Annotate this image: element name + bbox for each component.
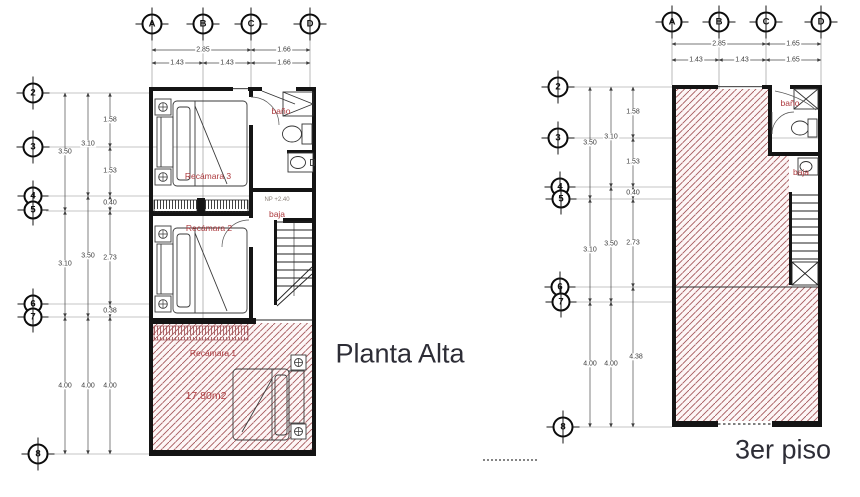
dim-label: 1.65 <box>785 56 801 63</box>
dim-label: 2.73 <box>102 254 118 261</box>
grid-bubble-3-right: 3 <box>547 127 570 150</box>
dim-label: 3.10 <box>582 246 598 253</box>
dim-label: 1.66 <box>276 46 292 53</box>
grid-bubble-2: 2 <box>22 82 45 105</box>
dotted-divider <box>483 459 537 461</box>
grid-bubble-8-right: 8 <box>552 416 575 439</box>
room-label-recamara-1: Recámara 1 <box>190 348 236 358</box>
dim-label: 1.43 <box>734 56 750 63</box>
dim-label: 1.65 <box>785 40 801 47</box>
grid-bubble-d: D <box>299 13 322 36</box>
bathroom-left-plan <box>222 92 315 247</box>
grid-bubble-c-right: C <box>755 11 778 34</box>
dim-label: 2.85 <box>711 40 727 47</box>
grid-bubble-8: 8 <box>27 443 50 466</box>
dim-label: 4.00 <box>102 382 118 389</box>
dim-label: 3.50 <box>80 252 96 259</box>
dim-label: 2.85 <box>195 46 211 53</box>
dim-label: 3.10 <box>57 260 73 267</box>
dim-label: 2.73 <box>625 239 641 246</box>
grid-bubble-7-right: 7 <box>551 292 572 313</box>
plan-title-planta-alta: Planta Alta <box>335 339 464 370</box>
stairs-label-baja-left: baja <box>269 209 285 219</box>
dim-label: 1.66 <box>276 59 292 66</box>
level-note: NP +2.40 <box>264 197 289 203</box>
room-area-label: 17.80m2 <box>186 390 227 402</box>
stairs-label-baja-right: baja <box>793 167 809 177</box>
right-plan-hatched-floor <box>676 89 818 421</box>
dim-label: 3.50 <box>57 148 73 155</box>
dim-label: 0.40 <box>102 199 118 206</box>
grid-bubble-a: A <box>141 13 164 36</box>
dim-label: 3.50 <box>582 139 598 146</box>
floorplan-linework <box>0 0 860 497</box>
floor-plan-canvas: A B C D 2 3 4 5 6 7 8 2.85 1.66 1.43 1.4… <box>0 0 860 497</box>
stairs-left-plan <box>274 220 312 306</box>
plan-title-3er-piso: 3er piso <box>735 435 831 466</box>
room-label-recamara-2: Recámara 2 <box>186 223 232 233</box>
grid-bubble-5-right: 5 <box>551 189 572 210</box>
dim-label: 4.00 <box>582 360 598 367</box>
dim-label: 1.43 <box>169 59 185 66</box>
room-label-bano-right: baño <box>781 98 800 108</box>
toilet <box>792 121 809 135</box>
dim-label: 1.58 <box>102 116 118 123</box>
toilet <box>283 126 302 142</box>
dim-label: 4.00 <box>603 360 619 367</box>
sink <box>288 153 313 172</box>
grid-bubble-2-right: 2 <box>547 76 570 99</box>
dim-label: 1.58 <box>625 108 641 115</box>
grid-bubble-b-right: B <box>708 11 731 34</box>
grid-bubble-5: 5 <box>23 200 44 221</box>
dim-label: 1.53 <box>102 167 118 174</box>
dim-label: 3.50 <box>603 240 619 247</box>
grid-bubble-7: 7 <box>23 307 44 328</box>
dim-label: 4.00 <box>80 382 96 389</box>
grid-bubble-a-right: A <box>661 11 684 34</box>
dim-label: 3.10 <box>80 140 96 147</box>
room-label-recamara-3: Recámara 3 <box>185 171 231 181</box>
dim-label: 1.43 <box>219 59 235 66</box>
stairs-right-plan <box>792 195 818 285</box>
dim-label: 4.00 <box>57 382 73 389</box>
dim-label: 4.38 <box>628 353 644 360</box>
left-plan-hatched-floor <box>153 323 312 450</box>
dim-label: 0.40 <box>625 189 641 196</box>
grid-bubble-b: B <box>192 13 215 36</box>
dim-label: 1.43 <box>688 56 704 63</box>
dim-label: 1.53 <box>625 158 641 165</box>
door-arc <box>772 112 794 134</box>
grid-bubble-c: C <box>240 13 263 36</box>
grid-bubble-3: 3 <box>22 136 45 159</box>
room-label-bano-left: baño <box>272 106 291 116</box>
bed-recamara-2 <box>155 226 247 313</box>
dim-label: 3.10 <box>603 133 619 140</box>
dim-label: 0.38 <box>102 307 118 314</box>
grid-bubble-d-right: D <box>810 11 833 34</box>
